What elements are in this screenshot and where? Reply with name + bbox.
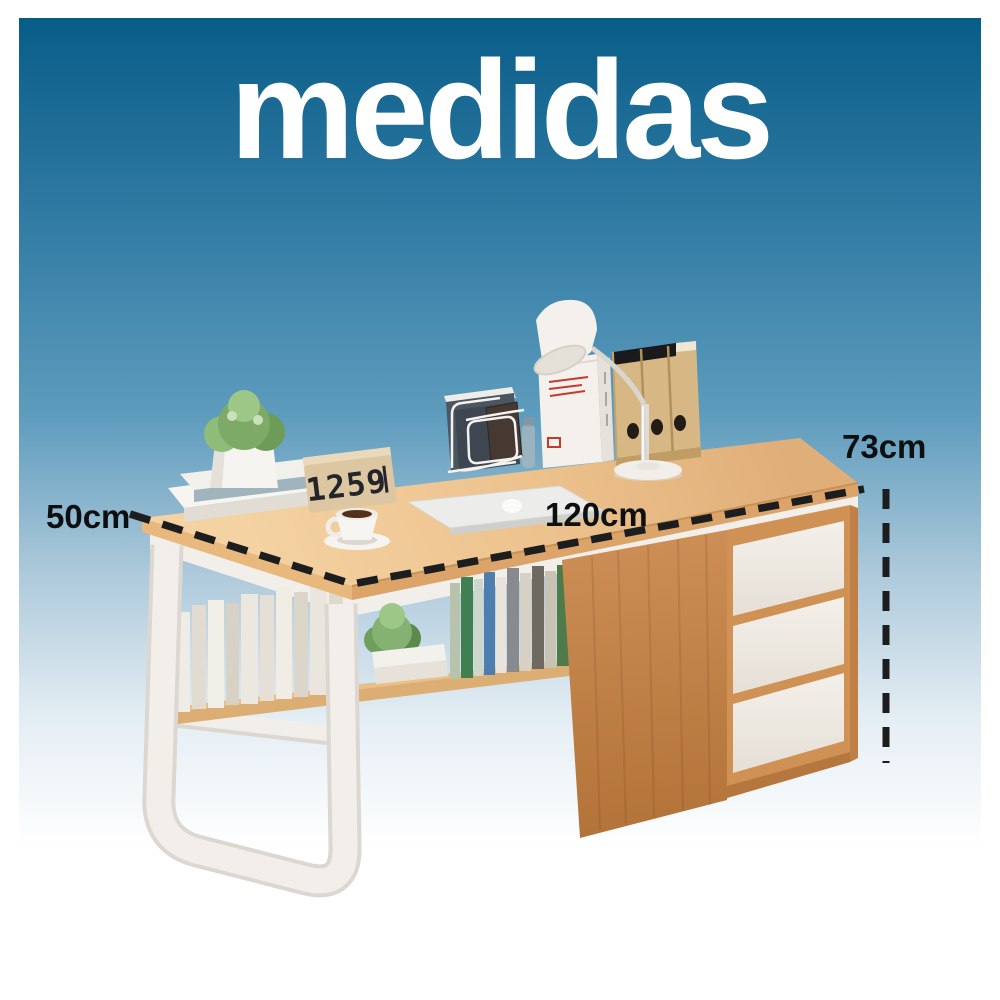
measurement-label-height: 73cm [842,428,926,466]
shelf-books-middle [450,565,569,679]
small-bottle [522,417,535,468]
cabinet-right-edge [850,505,858,762]
shelf-books-left [174,585,343,712]
cabinet-side-panel [562,530,727,838]
drawer-cabinet [562,505,858,838]
file-boxes [612,341,701,468]
measurement-label-depth: 50cm [46,498,130,536]
potted-plant [204,390,285,488]
desk-illustration: 1259 [0,0,1000,1000]
measurement-label-width: 120cm [545,496,648,534]
wooden-clock: 1259 [302,447,397,513]
wire-organizer [444,387,524,472]
laptop-logo [502,499,522,513]
